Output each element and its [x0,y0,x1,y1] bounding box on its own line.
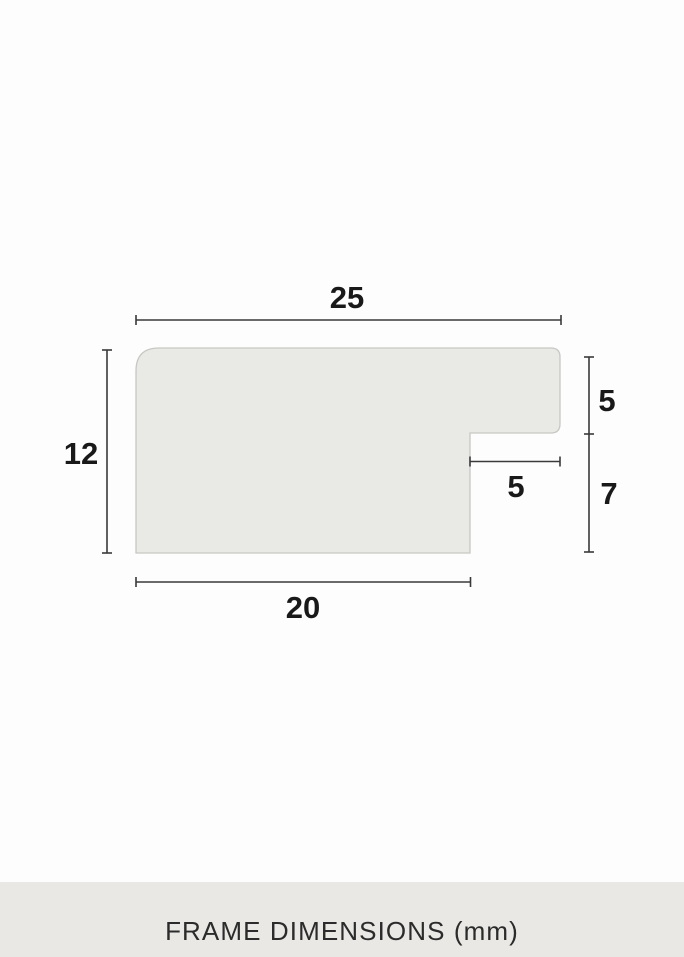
svg-text:20: 20 [286,590,320,625]
svg-text:25: 25 [330,280,364,315]
svg-text:5: 5 [507,469,524,504]
svg-text:7: 7 [600,476,617,511]
svg-text:12: 12 [64,436,98,471]
svg-text:5: 5 [598,383,615,418]
